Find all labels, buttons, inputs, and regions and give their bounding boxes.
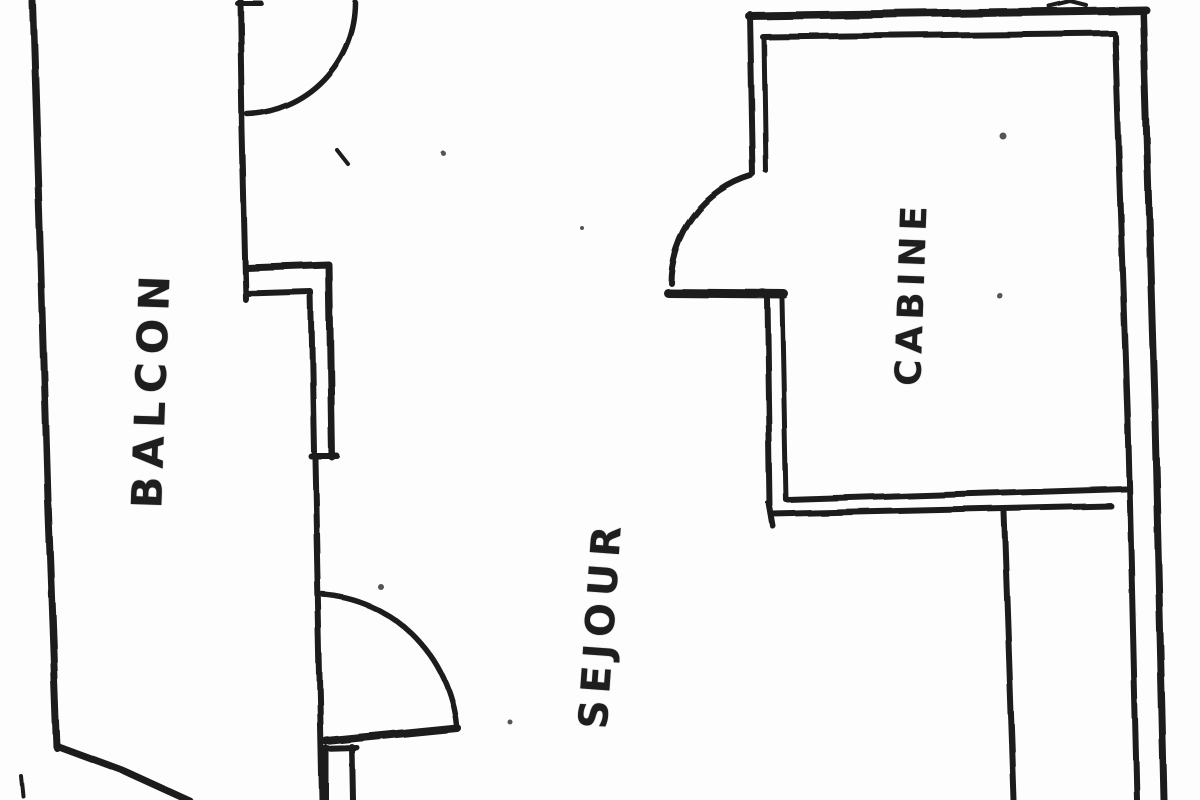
bottom-door-swing-arc xyxy=(322,594,456,725)
cabine-left-wall-lower-inner xyxy=(782,299,786,500)
right-wall-outer xyxy=(1143,13,1164,800)
scan-speck xyxy=(580,226,584,230)
bottom-wall-stub-cap xyxy=(321,748,357,749)
room-label-cabine: CABINE xyxy=(888,199,935,386)
balcony-inner-wall-upper xyxy=(240,0,246,300)
cabine-door-leaf xyxy=(668,293,784,294)
floor-plan: BALCON SEJOUR CABINE xyxy=(0,0,1200,800)
cabine-top-wall-inner xyxy=(763,33,1114,37)
scan-speck xyxy=(1000,133,1007,140)
bottom-door-leaf xyxy=(326,728,457,741)
cabine-left-wall-upper-inner xyxy=(764,38,766,171)
cabine-left-wall-upper-outer xyxy=(750,14,753,174)
stray-ink-tick xyxy=(337,150,348,164)
cabine-top-wall-outer xyxy=(749,10,1146,16)
balcony-outer-wall xyxy=(33,2,57,748)
scan-speck xyxy=(997,293,1003,299)
bottom-wall-stub-right xyxy=(352,747,353,800)
step-wall-inner xyxy=(246,292,314,452)
scan-speck xyxy=(441,151,446,156)
cabine-bottom-wall-inner xyxy=(788,489,1126,500)
cabine-left-wall-lower-outer xyxy=(767,299,770,505)
scan-speck xyxy=(508,720,513,725)
partition-wall-below-cabine xyxy=(1004,512,1014,800)
room-label-balcon: BALCON xyxy=(122,267,179,510)
scan-speck xyxy=(377,583,383,589)
right-wall-inner xyxy=(1115,36,1137,800)
stray-ink-tick xyxy=(21,776,23,796)
cabine-bottom-wall-outer xyxy=(772,506,1111,514)
cabine-corner-tick xyxy=(1049,1,1086,6)
cabine-door-swing-arc xyxy=(671,176,751,283)
top-door-swing-arc xyxy=(247,2,355,114)
balcony-bottom-diagonal-wall xyxy=(57,746,190,800)
